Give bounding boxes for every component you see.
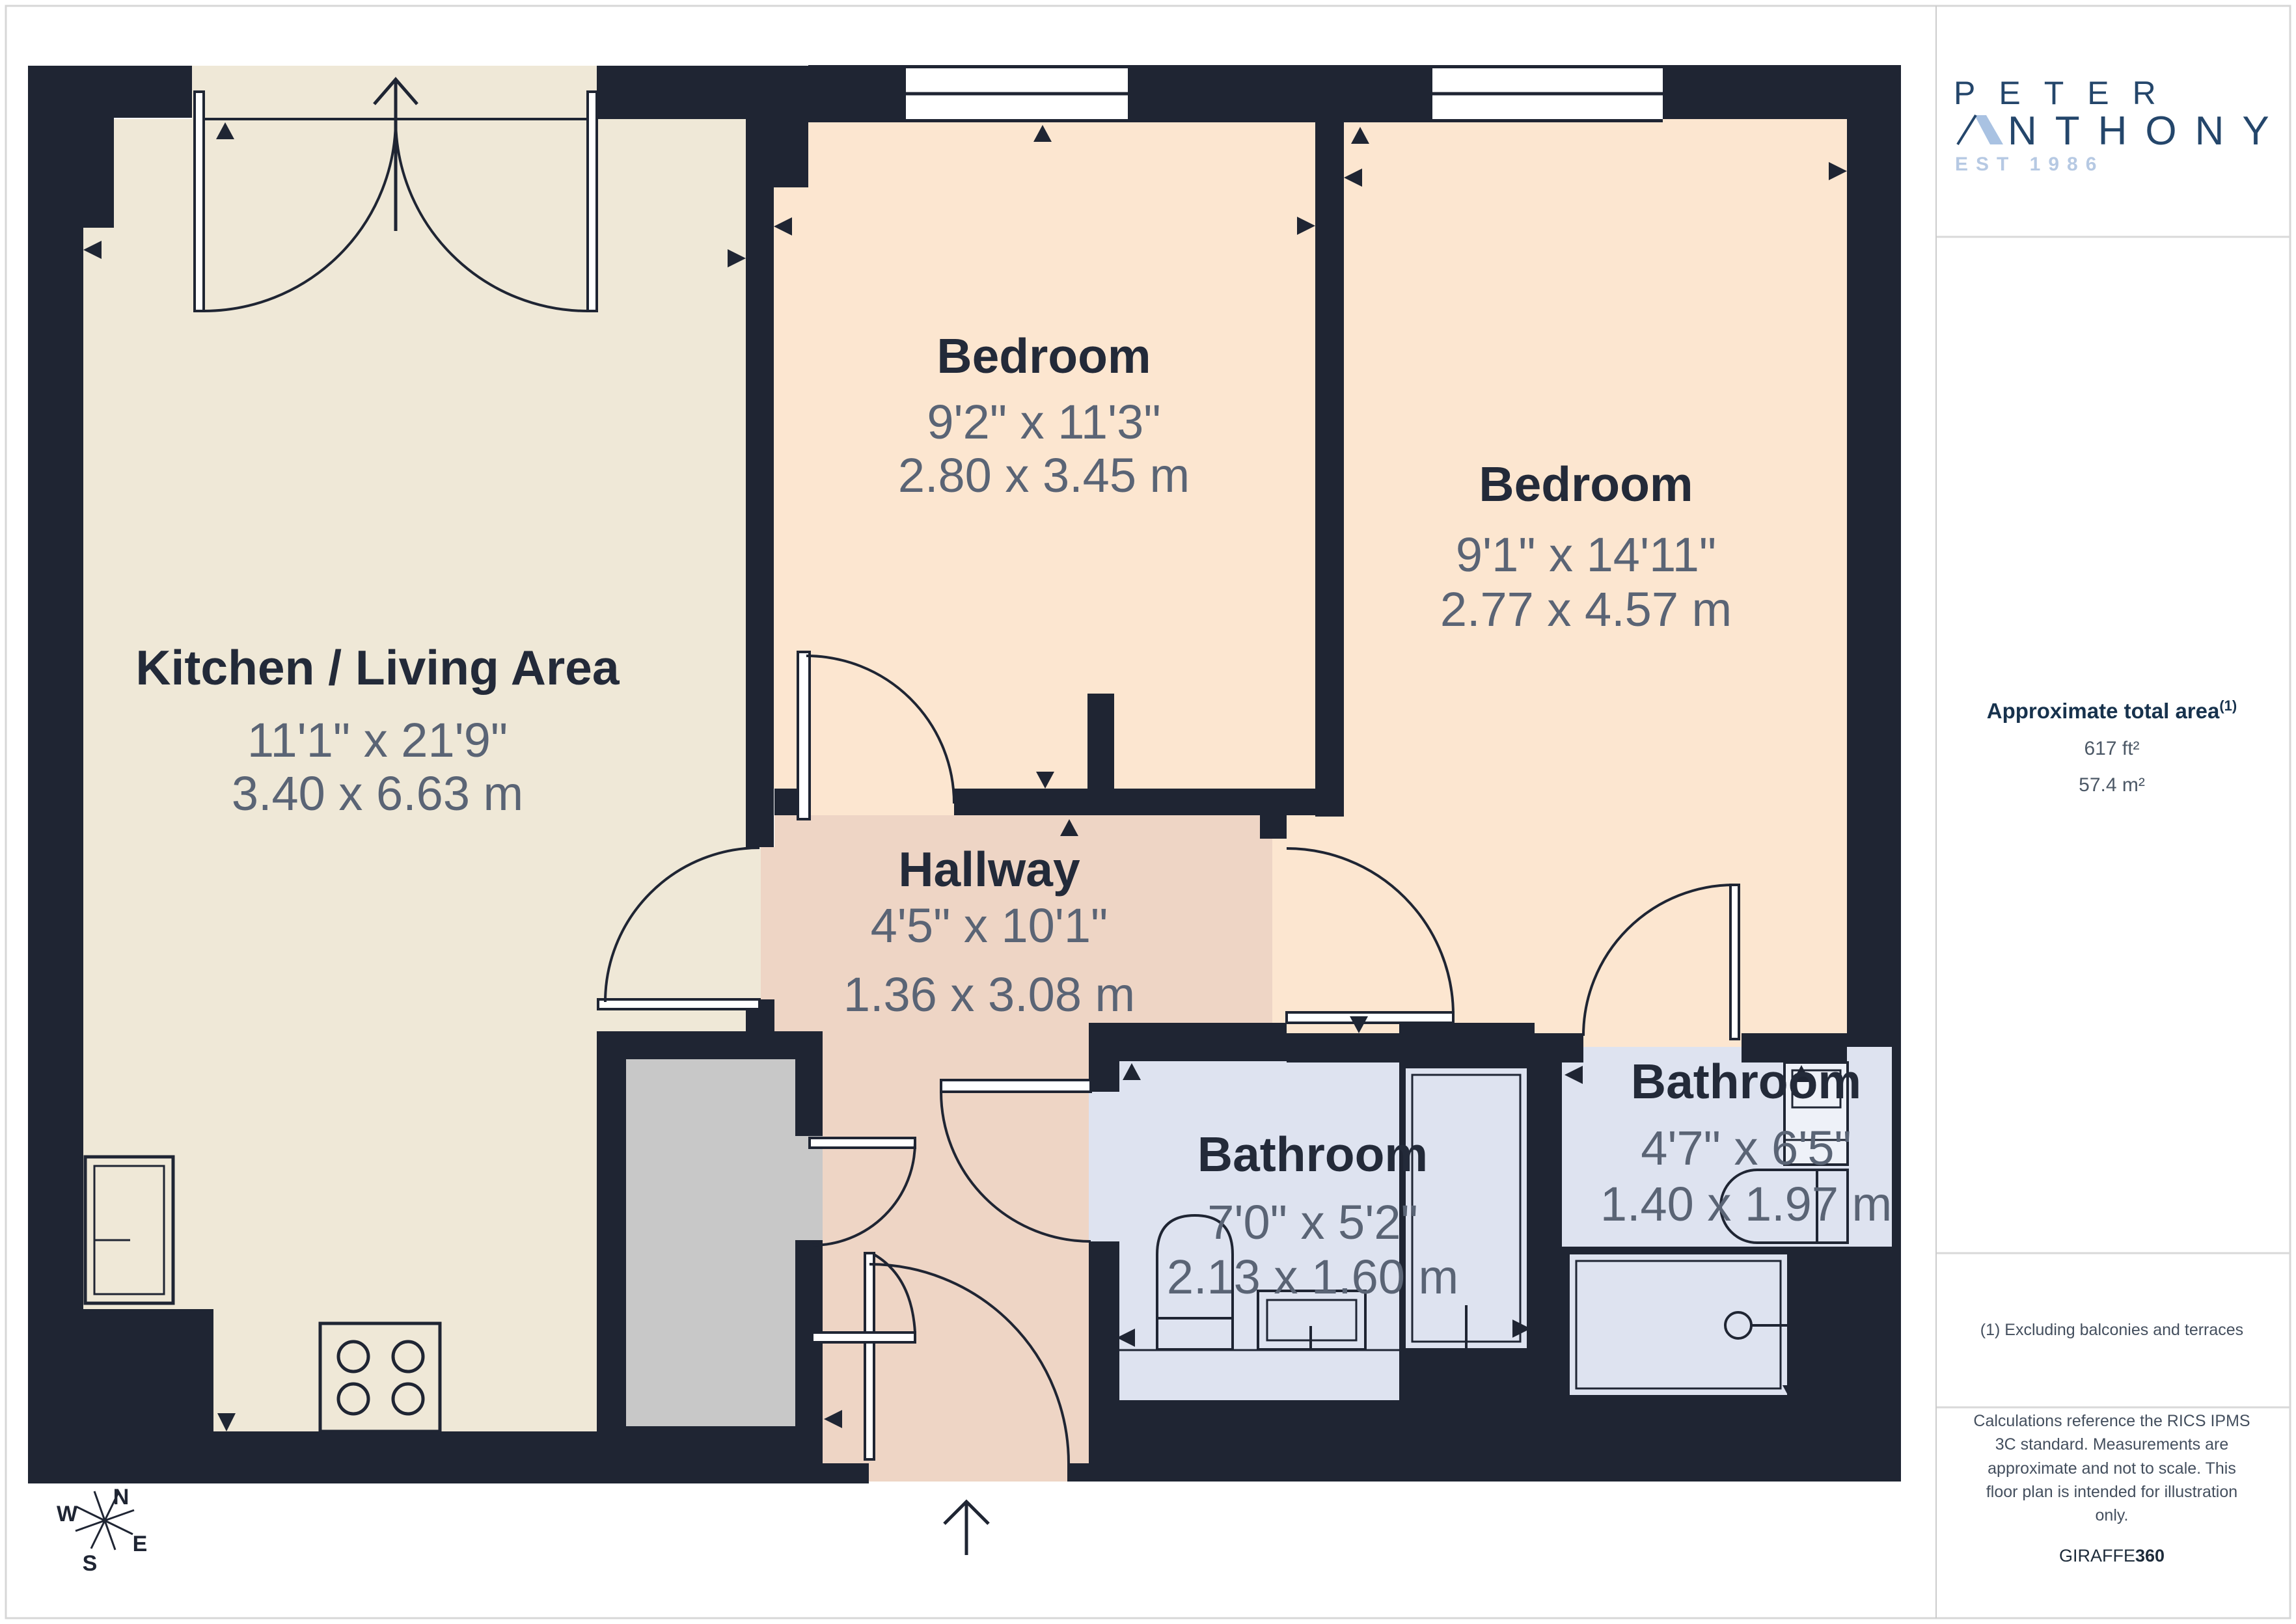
svg-text:E: E: [133, 1532, 148, 1556]
svg-text:2.13 x 1.60 m: 2.13 x 1.60 m: [1167, 1250, 1458, 1304]
svg-text:2.77 x 4.57 m: 2.77 x 4.57 m: [1440, 582, 1732, 636]
svg-text:617 ft²: 617 ft²: [2084, 738, 2139, 759]
svg-text:Hallway: Hallway: [898, 842, 1080, 897]
svg-text:PETER: PETER: [1954, 75, 2180, 111]
svg-text:Bedroom: Bedroom: [1479, 457, 1693, 511]
svg-text:(1) Excluding balconies and te: (1) Excluding balconies and terraces: [1980, 1321, 2243, 1339]
svg-text:1.36 x 3.08 m: 1.36 x 3.08 m: [843, 968, 1135, 1022]
svg-text:floor plan is intended for ill: floor plan is intended for illustration: [1986, 1483, 2237, 1501]
svg-text:S: S: [83, 1551, 98, 1576]
svg-text:only.: only.: [2096, 1506, 2129, 1524]
svg-text:Approximate total area(1): Approximate total area(1): [1987, 697, 2237, 723]
svg-text:W: W: [57, 1502, 78, 1526]
svg-text:2.80 x 3.45 m: 2.80 x 3.45 m: [898, 448, 1190, 502]
svg-text:4'7" x 6'5": 4'7" x 6'5": [1641, 1121, 1852, 1175]
svg-text:Kitchen / Living Area: Kitchen / Living Area: [135, 640, 620, 695]
svg-text:3.40 x 6.63 m: 3.40 x 6.63 m: [232, 766, 523, 820]
svg-text:1.40 x 1.97 m: 1.40 x 1.97 m: [1600, 1177, 1892, 1231]
svg-text:9'1" x 14'11": 9'1" x 14'11": [1456, 528, 1716, 582]
svg-text:NTHONY: NTHONY: [2008, 109, 2288, 154]
svg-text:9'2" x 11'3": 9'2" x 11'3": [927, 395, 1160, 449]
svg-text:57.4 m²: 57.4 m²: [2079, 774, 2145, 796]
svg-text:EST 1986: EST 1986: [1955, 154, 2104, 175]
svg-text:Bathroom: Bathroom: [1631, 1054, 1861, 1109]
svg-text:4'5" x 10'1": 4'5" x 10'1": [871, 899, 1108, 953]
svg-text:Bathroom: Bathroom: [1197, 1127, 1428, 1182]
svg-text:approximate and not to scale.: approximate and not to scale. This: [1988, 1459, 2236, 1478]
svg-text:3C standard. Measurements are: 3C standard. Measurements are: [1995, 1435, 2229, 1454]
svg-text:11'1" x 21'9": 11'1" x 21'9": [247, 713, 508, 767]
svg-text:7'0" x 5'2": 7'0" x 5'2": [1207, 1195, 1418, 1249]
svg-text:Bedroom: Bedroom: [936, 329, 1151, 383]
svg-text:GIRAFFE360: GIRAFFE360: [2059, 1546, 2165, 1565]
svg-text:Calculations reference the RIC: Calculations reference the RICS IPMS: [1973, 1412, 2250, 1430]
svg-text:N: N: [113, 1485, 130, 1509]
